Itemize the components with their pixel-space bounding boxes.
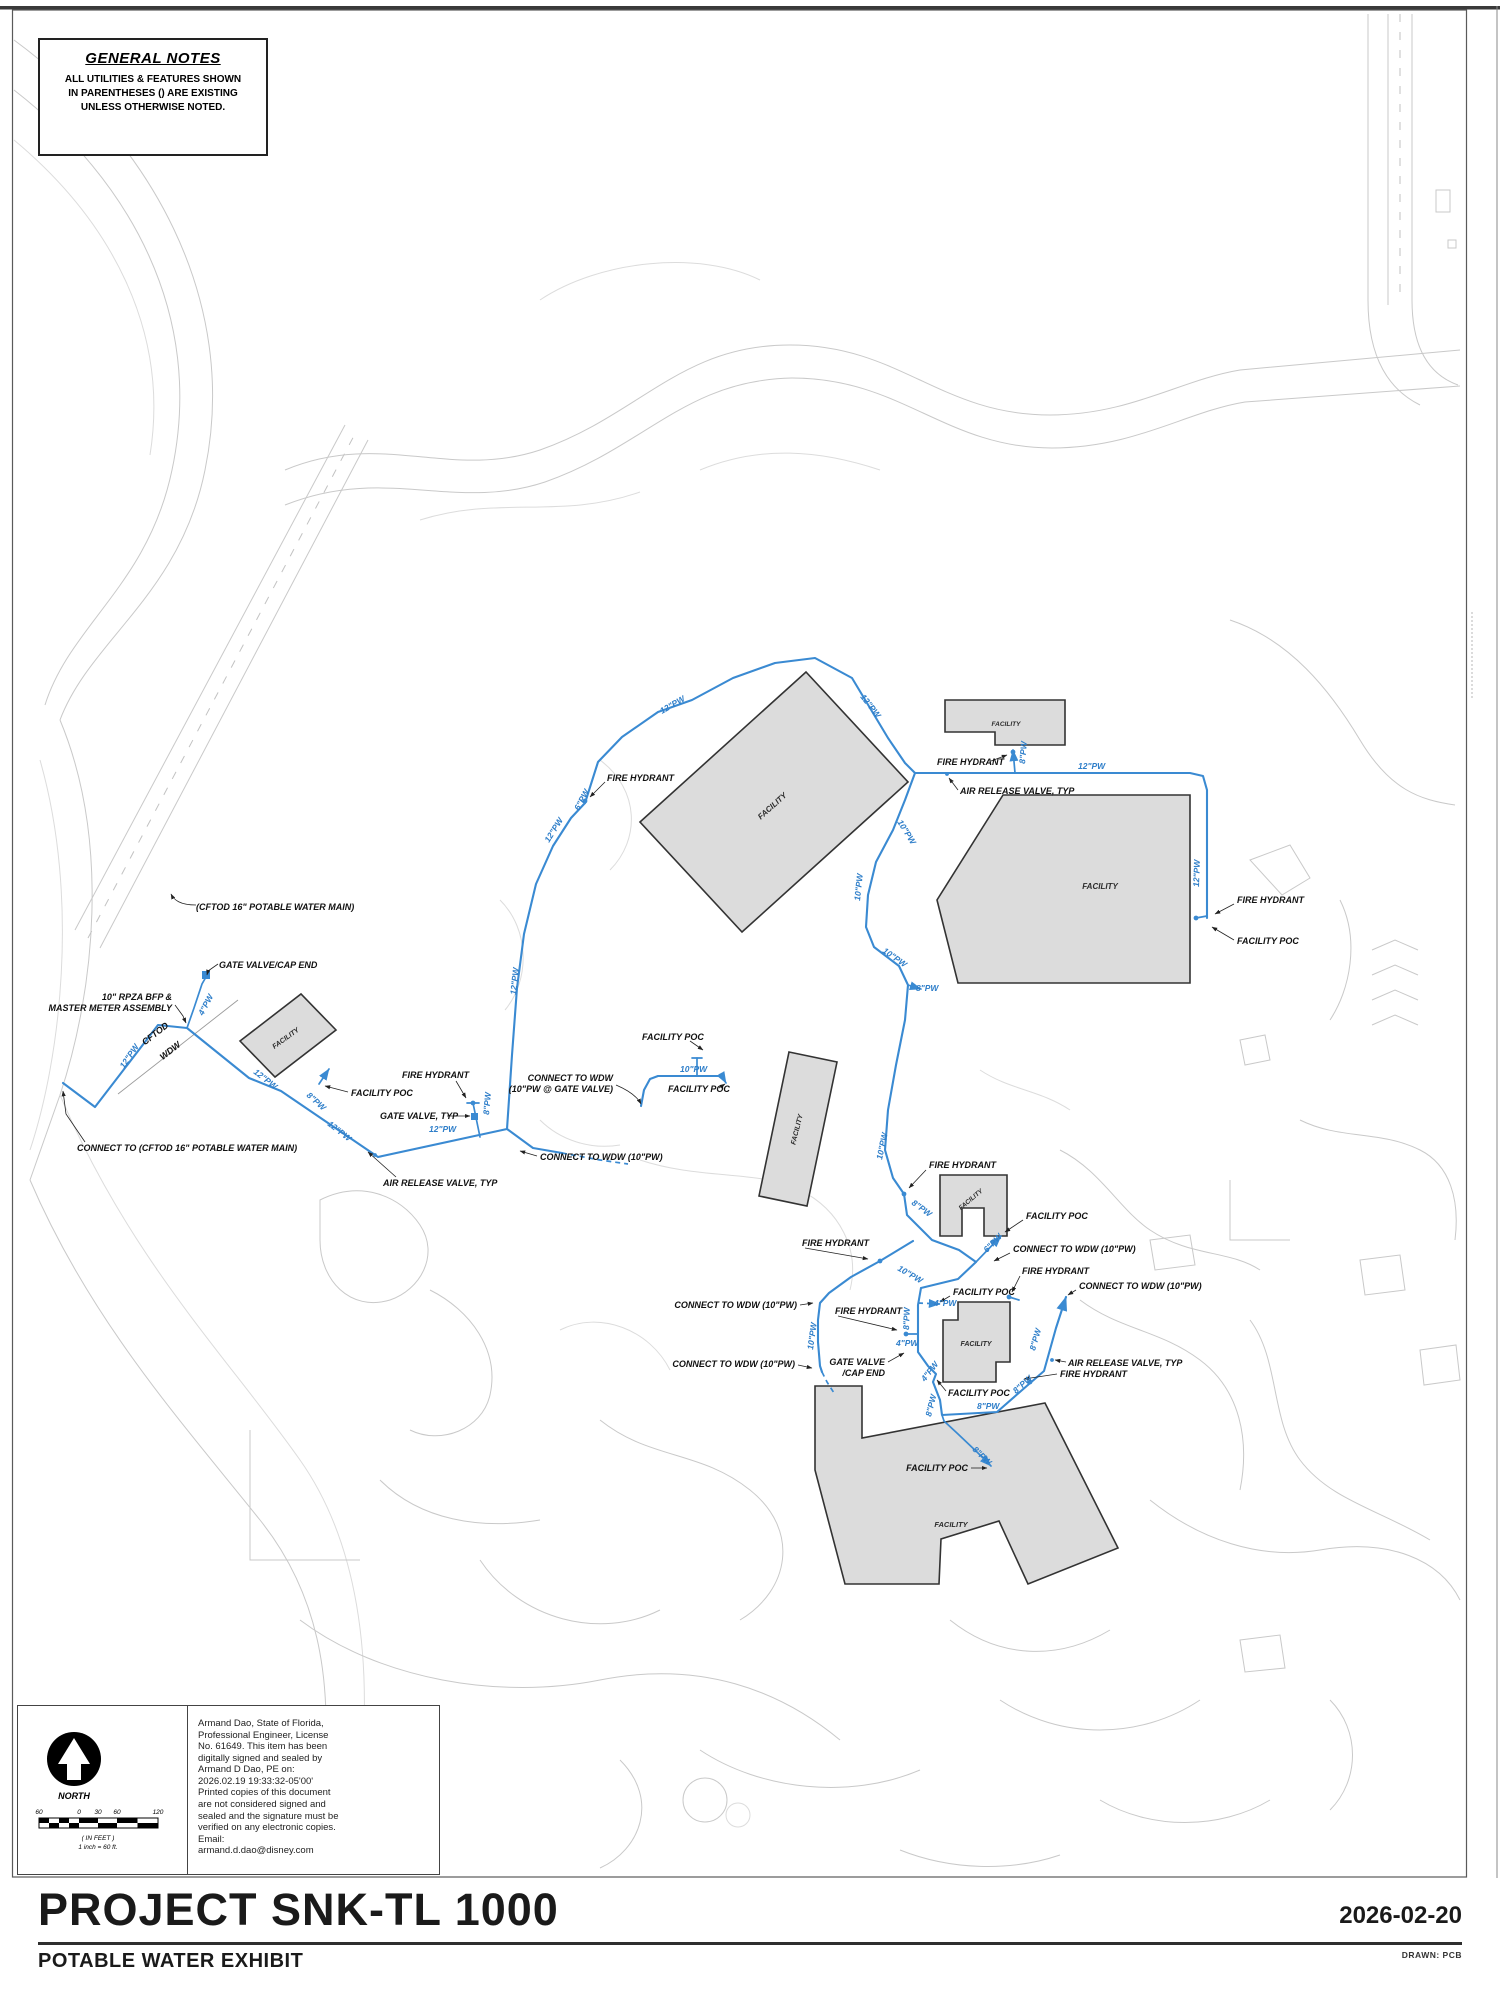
callout-label: FACILITY POC	[948, 1388, 1010, 1398]
pipe-size-label: 12"PW	[429, 1124, 457, 1134]
pipe-size-label: 12"PW	[858, 692, 883, 720]
callout-label: CFTOD	[140, 1020, 171, 1047]
callout-label: FIRE HYDRANT	[802, 1238, 871, 1248]
svg-text:30: 30	[94, 1809, 102, 1816]
callout-label: WDW	[158, 1039, 184, 1062]
site-plan-map: 4"PW12"PW12"PW8"PW12"PW12"PW8"PW12"PW12"…	[0, 0, 1500, 2000]
callout-label: FIRE HYDRANT	[929, 1160, 998, 1170]
pipe-size-label: 12"PW	[326, 1119, 354, 1144]
callout-label: CONNECT TO WDW (10"PW)	[1079, 1281, 1202, 1291]
title-block: PROJECT SNK-TL 1000 2026-02-20 POTABLE W…	[0, 1878, 1500, 2000]
signature-text: Armand Dao, State of Florida, Profession…	[198, 1718, 433, 1857]
callout-label: FIRE HYDRANT	[937, 757, 1006, 767]
drawn-by: DRAWN: PCB	[1402, 1950, 1462, 1960]
svg-text:0: 0	[77, 1809, 81, 1816]
callout-label: CONNECT TO (CFTOD 16" POTABLE WATER MAIN…	[77, 1143, 297, 1153]
pipe-size-label: 10"PW	[680, 1064, 708, 1074]
pipe-size-label: 8"PW	[923, 1392, 938, 1417]
callout-label: FIRE HYDRANT	[1022, 1266, 1091, 1276]
pipe-size-label: 12"PW	[117, 1041, 141, 1070]
callout-label: CONNECT TO WDW (10"PW)	[674, 1300, 797, 1310]
general-notes-title: GENERAL NOTES	[40, 50, 266, 67]
pipe-size-label: 8"PW	[1017, 740, 1029, 764]
callout-label: FIRE HYDRANT	[607, 773, 676, 783]
pipe-size-label: 12"PW	[1078, 761, 1106, 771]
svg-text:60: 60	[35, 1809, 43, 1816]
callout-label: CONNECT TO WDW (10"PW)	[540, 1152, 663, 1162]
pipe-size-label: 10"PW	[881, 945, 910, 969]
callout-label: CONNECT TO WDW (10"PW)	[1013, 1244, 1136, 1254]
facility-label: FACILITY	[992, 721, 1022, 728]
callout-label: GATE VALVE/CAP END	[829, 1357, 886, 1378]
pipe-size-label: 8"PW	[1027, 1326, 1043, 1351]
scale-bar	[39, 1818, 158, 1828]
title-rule	[38, 1942, 1462, 1945]
drawing-sheet: 4"PW12"PW12"PW8"PW12"PW12"PW8"PW12"PW12"…	[0, 0, 1500, 2000]
north-scale-graphic: NORTH 60 0 30 60 120 ( IN FEET ) 1 inch	[18, 1706, 187, 1874]
pipe-size-label: 10"PW	[852, 872, 865, 901]
facility-label: FACILITY	[960, 1341, 992, 1348]
pipe-size-label: 10"PW	[896, 1263, 925, 1286]
callout-label: FACILITY POC	[351, 1088, 413, 1098]
callout-label: CONNECT TO WDW(10"PW @ GATE VALVE)	[509, 1073, 615, 1094]
scale-ratio: 1 inch = 60 ft.	[78, 1844, 117, 1851]
callout-label: FIRE HYDRANT	[835, 1306, 904, 1316]
scale-units: ( IN FEET )	[82, 1835, 115, 1842]
facility-buildings	[240, 672, 1190, 1584]
signature-box: Armand Dao, State of Florida, Profession…	[188, 1705, 440, 1875]
pipe-size-label: 4"PW	[933, 1298, 957, 1308]
callout-label: (CFTOD 16" POTABLE WATER MAIN)	[196, 902, 354, 912]
svg-text:120: 120	[153, 1809, 164, 1816]
callout-label: FIRE HYDRANT	[1237, 895, 1306, 905]
pipe-size-label: 8"PW	[901, 1306, 912, 1330]
callout-label: FIRE HYDRANT	[402, 1070, 471, 1080]
north-arrow-icon	[47, 1732, 101, 1786]
pipe-size-label: 10"PW	[895, 818, 918, 847]
callout-label: CONNECT TO WDW (10"PW)	[672, 1359, 795, 1369]
callout-label: AIR RELEASE VALVE, TYP	[1067, 1358, 1183, 1368]
pipe-size-label: 12"PW	[542, 815, 565, 844]
north-label: NORTH	[58, 1791, 90, 1801]
callout-label: FIRE HYDRANT	[1060, 1369, 1129, 1379]
callout-label: FACILITY POC	[668, 1084, 730, 1094]
callout-label: FACILITY POC	[642, 1032, 704, 1042]
callout-label: GATE VALVE/CAP END	[219, 960, 318, 970]
callout-label: FACILITY POC	[906, 1463, 968, 1473]
general-notes-body: ALL UTILITIES & FEATURES SHOWN IN PARENT…	[40, 73, 266, 115]
pipe-size-label: 8"PW	[910, 1198, 935, 1220]
pipe-size-label: 8"PW	[977, 1401, 1000, 1411]
svg-text:60: 60	[113, 1809, 121, 1816]
callout-label: FACILITY POC	[1026, 1211, 1088, 1221]
facility-label: FACILITY	[934, 1520, 968, 1529]
pipe-size-label: 12"PW	[658, 693, 687, 716]
gate-valve-symbol	[202, 971, 210, 979]
callout-label: GATE VALVE, TYP	[380, 1111, 459, 1121]
general-notes-box: GENERAL NOTES ALL UTILITIES & FEATURES S…	[38, 38, 268, 156]
sheet-subtitle: POTABLE WATER EXHIBIT	[38, 1950, 303, 1973]
pipe-size-label: 8"PW	[481, 1091, 493, 1115]
pipe-size-label: 8"PW	[916, 983, 939, 993]
facility-label: FACILITY	[1082, 882, 1118, 891]
scale-ticks: 60 0 30 60 120	[35, 1809, 163, 1816]
callout-label: AIR RELEASE VALVE, TYP	[382, 1178, 498, 1188]
gate-valve-symbol	[471, 1113, 478, 1120]
callout-label: AIR RELEASE VALVE, TYP	[959, 786, 1075, 796]
callout-label: 10" RPZA BFP &MASTER METER ASSEMBLY	[48, 992, 173, 1013]
pipe-size-label: 4"PW	[895, 1338, 919, 1348]
callout-label: FACILITY POC	[1237, 936, 1299, 946]
callout-label: FACILITY POC	[953, 1287, 1015, 1297]
pipe-size-label: 10"PW	[805, 1321, 819, 1350]
pipe-size-label: 12"PW	[508, 966, 521, 995]
sheet-border	[0, 6, 1500, 1994]
project-title: PROJECT SNK-TL 1000	[38, 1884, 559, 1936]
pipe-size-label: 12"PW	[1191, 859, 1202, 887]
sheet-date: 2026-02-20	[1339, 1902, 1462, 1930]
north-scale-box: NORTH 60 0 30 60 120 ( IN FEET ) 1 inch	[17, 1705, 188, 1875]
